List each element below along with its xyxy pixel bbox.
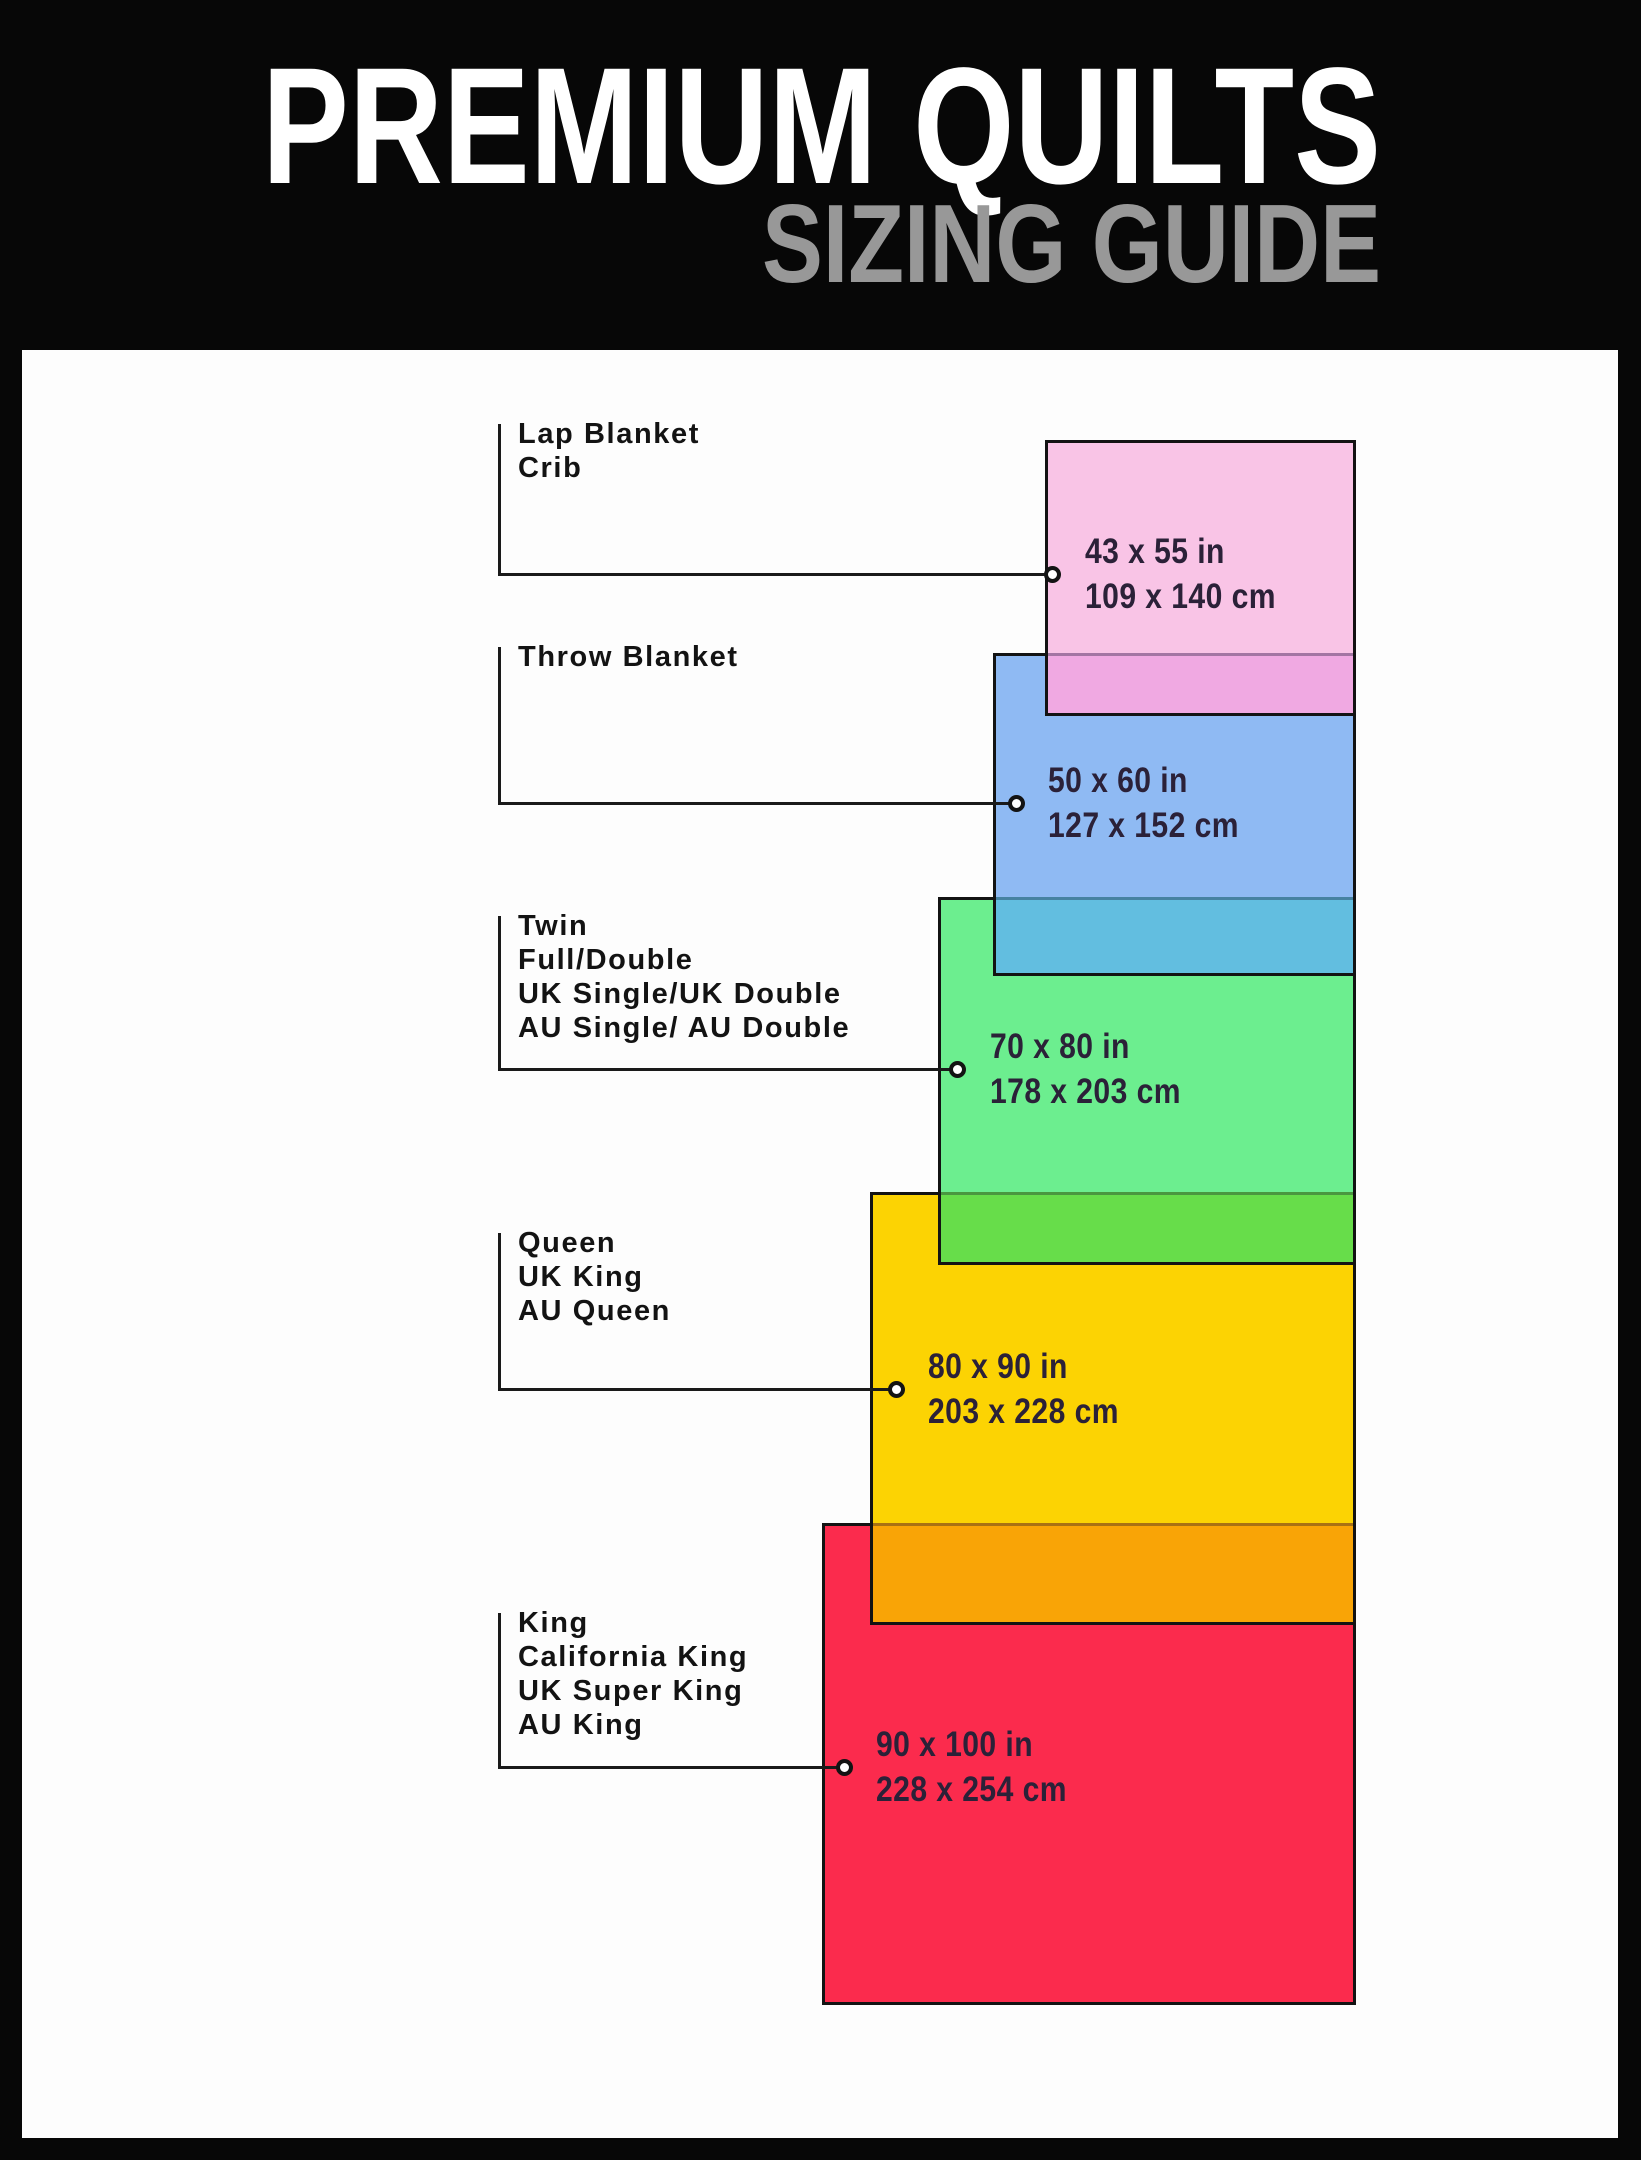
connector-vline-lap-blanket (498, 424, 501, 576)
connector-hline-throw-blanket (498, 802, 1016, 805)
size-centimeters: 109 x 140 cm (1085, 574, 1276, 619)
size-label-line: UK Super King (518, 1674, 748, 1708)
size-inches: 50 x 60 in (1048, 758, 1239, 803)
connector-dot-king (836, 1759, 853, 1776)
size-label-line: Crib (518, 451, 700, 485)
page-subtitle: SIZING GUIDE (762, 182, 1381, 306)
size-label-line: UK Single/UK Double (518, 977, 850, 1011)
size-dimensions-twin: 70 x 80 in178 x 203 cm (990, 1024, 1181, 1114)
size-label-line: Throw Blanket (518, 640, 739, 674)
overlap-twin-over-queen (941, 1192, 1353, 1262)
connector-vline-queen (498, 1233, 501, 1391)
size-label-line: King (518, 1606, 748, 1640)
size-centimeters: 203 x 228 cm (928, 1389, 1119, 1434)
size-inches: 80 x 90 in (928, 1344, 1119, 1389)
size-centimeters: 228 x 254 cm (876, 1767, 1067, 1812)
connector-hline-lap-blanket (498, 573, 1052, 576)
connector-vline-twin (498, 916, 501, 1071)
size-inches: 43 x 55 in (1085, 529, 1276, 574)
size-label-line: California King (518, 1640, 748, 1674)
size-label-line: AU Single/ AU Double (518, 1011, 850, 1045)
overlap-lap-blanket-over-throw-blanket (1048, 653, 1353, 713)
header: PREMIUM QUILTS SIZING GUIDE (0, 0, 1641, 350)
size-label-twin: TwinFull/DoubleUK Single/UK DoubleAU Sin… (518, 909, 850, 1045)
size-label-line: Lap Blanket (518, 417, 700, 451)
content-panel (22, 350, 1618, 2138)
size-label-line: Queen (518, 1226, 671, 1260)
size-label-queen: QueenUK KingAU Queen (518, 1226, 671, 1328)
size-inches: 70 x 80 in (990, 1024, 1181, 1069)
size-dimensions-throw-blanket: 50 x 60 in127 x 152 cm (1048, 758, 1239, 848)
size-dimensions-king: 90 x 100 in228 x 254 cm (876, 1722, 1067, 1812)
connector-dot-throw-blanket (1008, 795, 1025, 812)
sizing-guide-page: PREMIUM QUILTS SIZING GUIDE Lap BlanketC… (0, 0, 1641, 2160)
connector-dot-queen (888, 1381, 905, 1398)
size-centimeters: 127 x 152 cm (1048, 803, 1239, 848)
size-label-line: AU King (518, 1708, 748, 1742)
overlap-queen-over-king (873, 1523, 1353, 1622)
size-label-line: Twin (518, 909, 850, 943)
size-centimeters: 178 x 203 cm (990, 1069, 1181, 1114)
size-dimensions-lap-blanket: 43 x 55 in109 x 140 cm (1085, 529, 1276, 619)
size-label-line: UK King (518, 1260, 671, 1294)
size-label-line: Full/Double (518, 943, 850, 977)
size-label-king: KingCalifornia KingUK Super KingAU King (518, 1606, 748, 1742)
connector-dot-lap-blanket (1044, 566, 1061, 583)
connector-hline-queen (498, 1388, 896, 1391)
size-dimensions-queen: 80 x 90 in203 x 228 cm (928, 1344, 1119, 1434)
size-label-lap-blanket: Lap BlanketCrib (518, 417, 700, 485)
size-label-line: AU Queen (518, 1294, 671, 1328)
connector-hline-king (498, 1766, 844, 1769)
connector-hline-twin (498, 1068, 957, 1071)
size-inches: 90 x 100 in (876, 1722, 1067, 1767)
connector-dot-twin (949, 1061, 966, 1078)
connector-vline-king (498, 1613, 501, 1769)
connector-vline-throw-blanket (498, 647, 501, 805)
overlap-throw-blanket-over-twin (996, 897, 1353, 973)
size-label-throw-blanket: Throw Blanket (518, 640, 739, 674)
